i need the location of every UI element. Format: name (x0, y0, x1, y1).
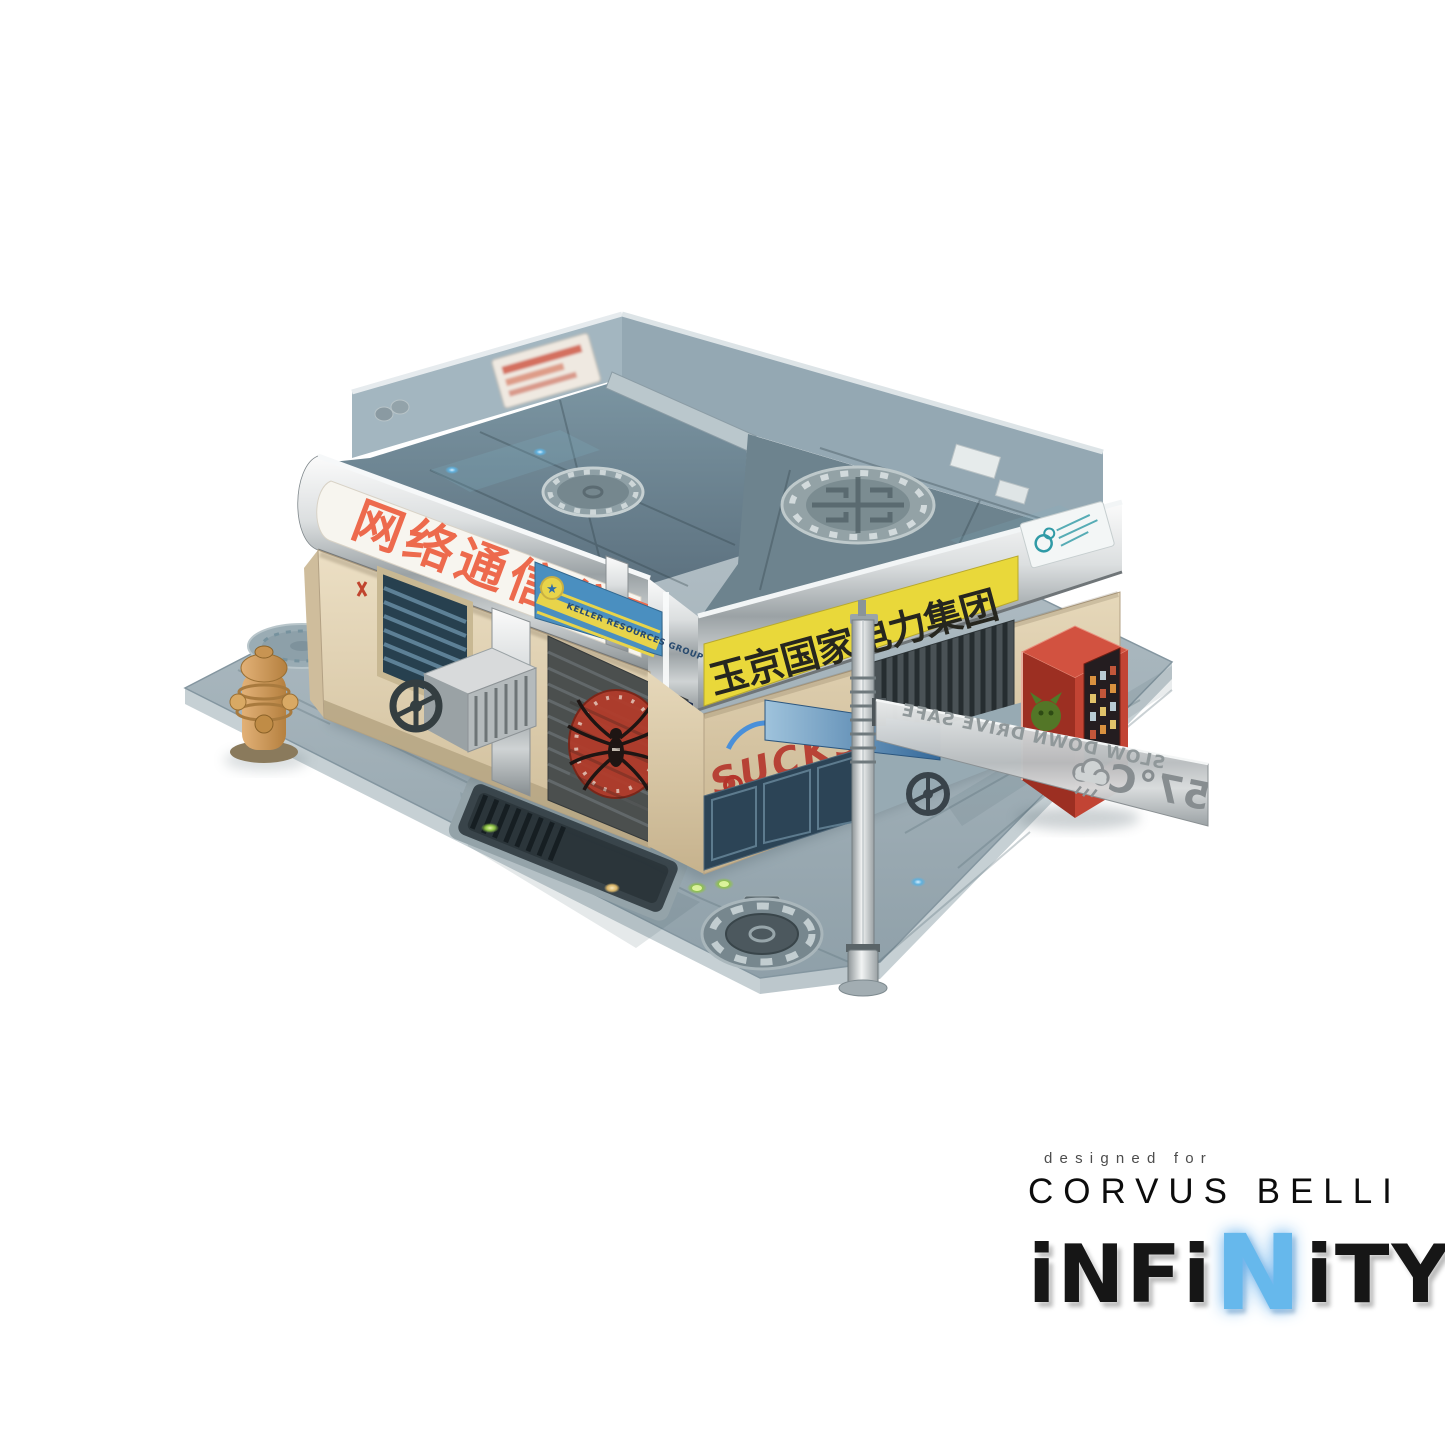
product-photo-page: 网络通信公司 玉京国家电力集团 ★ KELLER RESOURCES (0, 0, 1445, 1445)
roof-pipe (375, 407, 393, 421)
star-emblem-icon: ★ (546, 582, 558, 597)
designed-for-text: designed for (1044, 1150, 1418, 1167)
studio-name: CORVUS BELLI (1028, 1172, 1418, 1212)
roof-hatch-small (543, 468, 643, 516)
infinity-logo-accent-n: N (1214, 1227, 1303, 1321)
roof-hatch-large (782, 467, 934, 543)
roof-pipe (391, 400, 409, 414)
infinity-logo-prefix: iNFi (1028, 1239, 1212, 1311)
branding-block: designed for CORVUS BELLI iNFiNiTY (1028, 1150, 1418, 1314)
infinity-logo-suffix: iTY (1306, 1239, 1445, 1311)
infinity-logo: iNFiNiTY (1028, 1220, 1418, 1314)
